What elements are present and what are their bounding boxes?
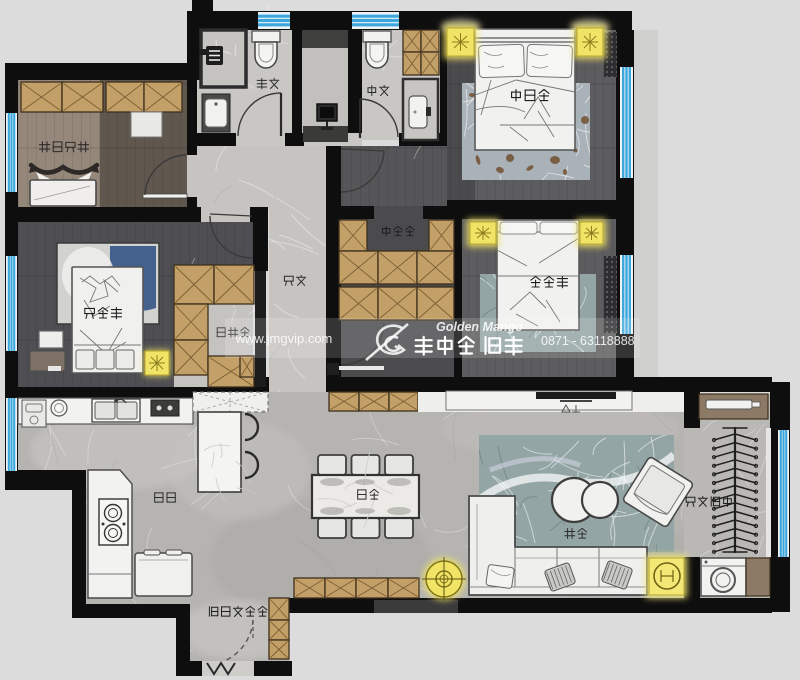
svg-text:www.jmgvip.com: www.jmgvip.com xyxy=(235,331,333,346)
svg-text:Golden Mango: Golden Mango xyxy=(436,320,523,334)
svg-text:0871 - 63118888: 0871 - 63118888 xyxy=(541,334,635,348)
